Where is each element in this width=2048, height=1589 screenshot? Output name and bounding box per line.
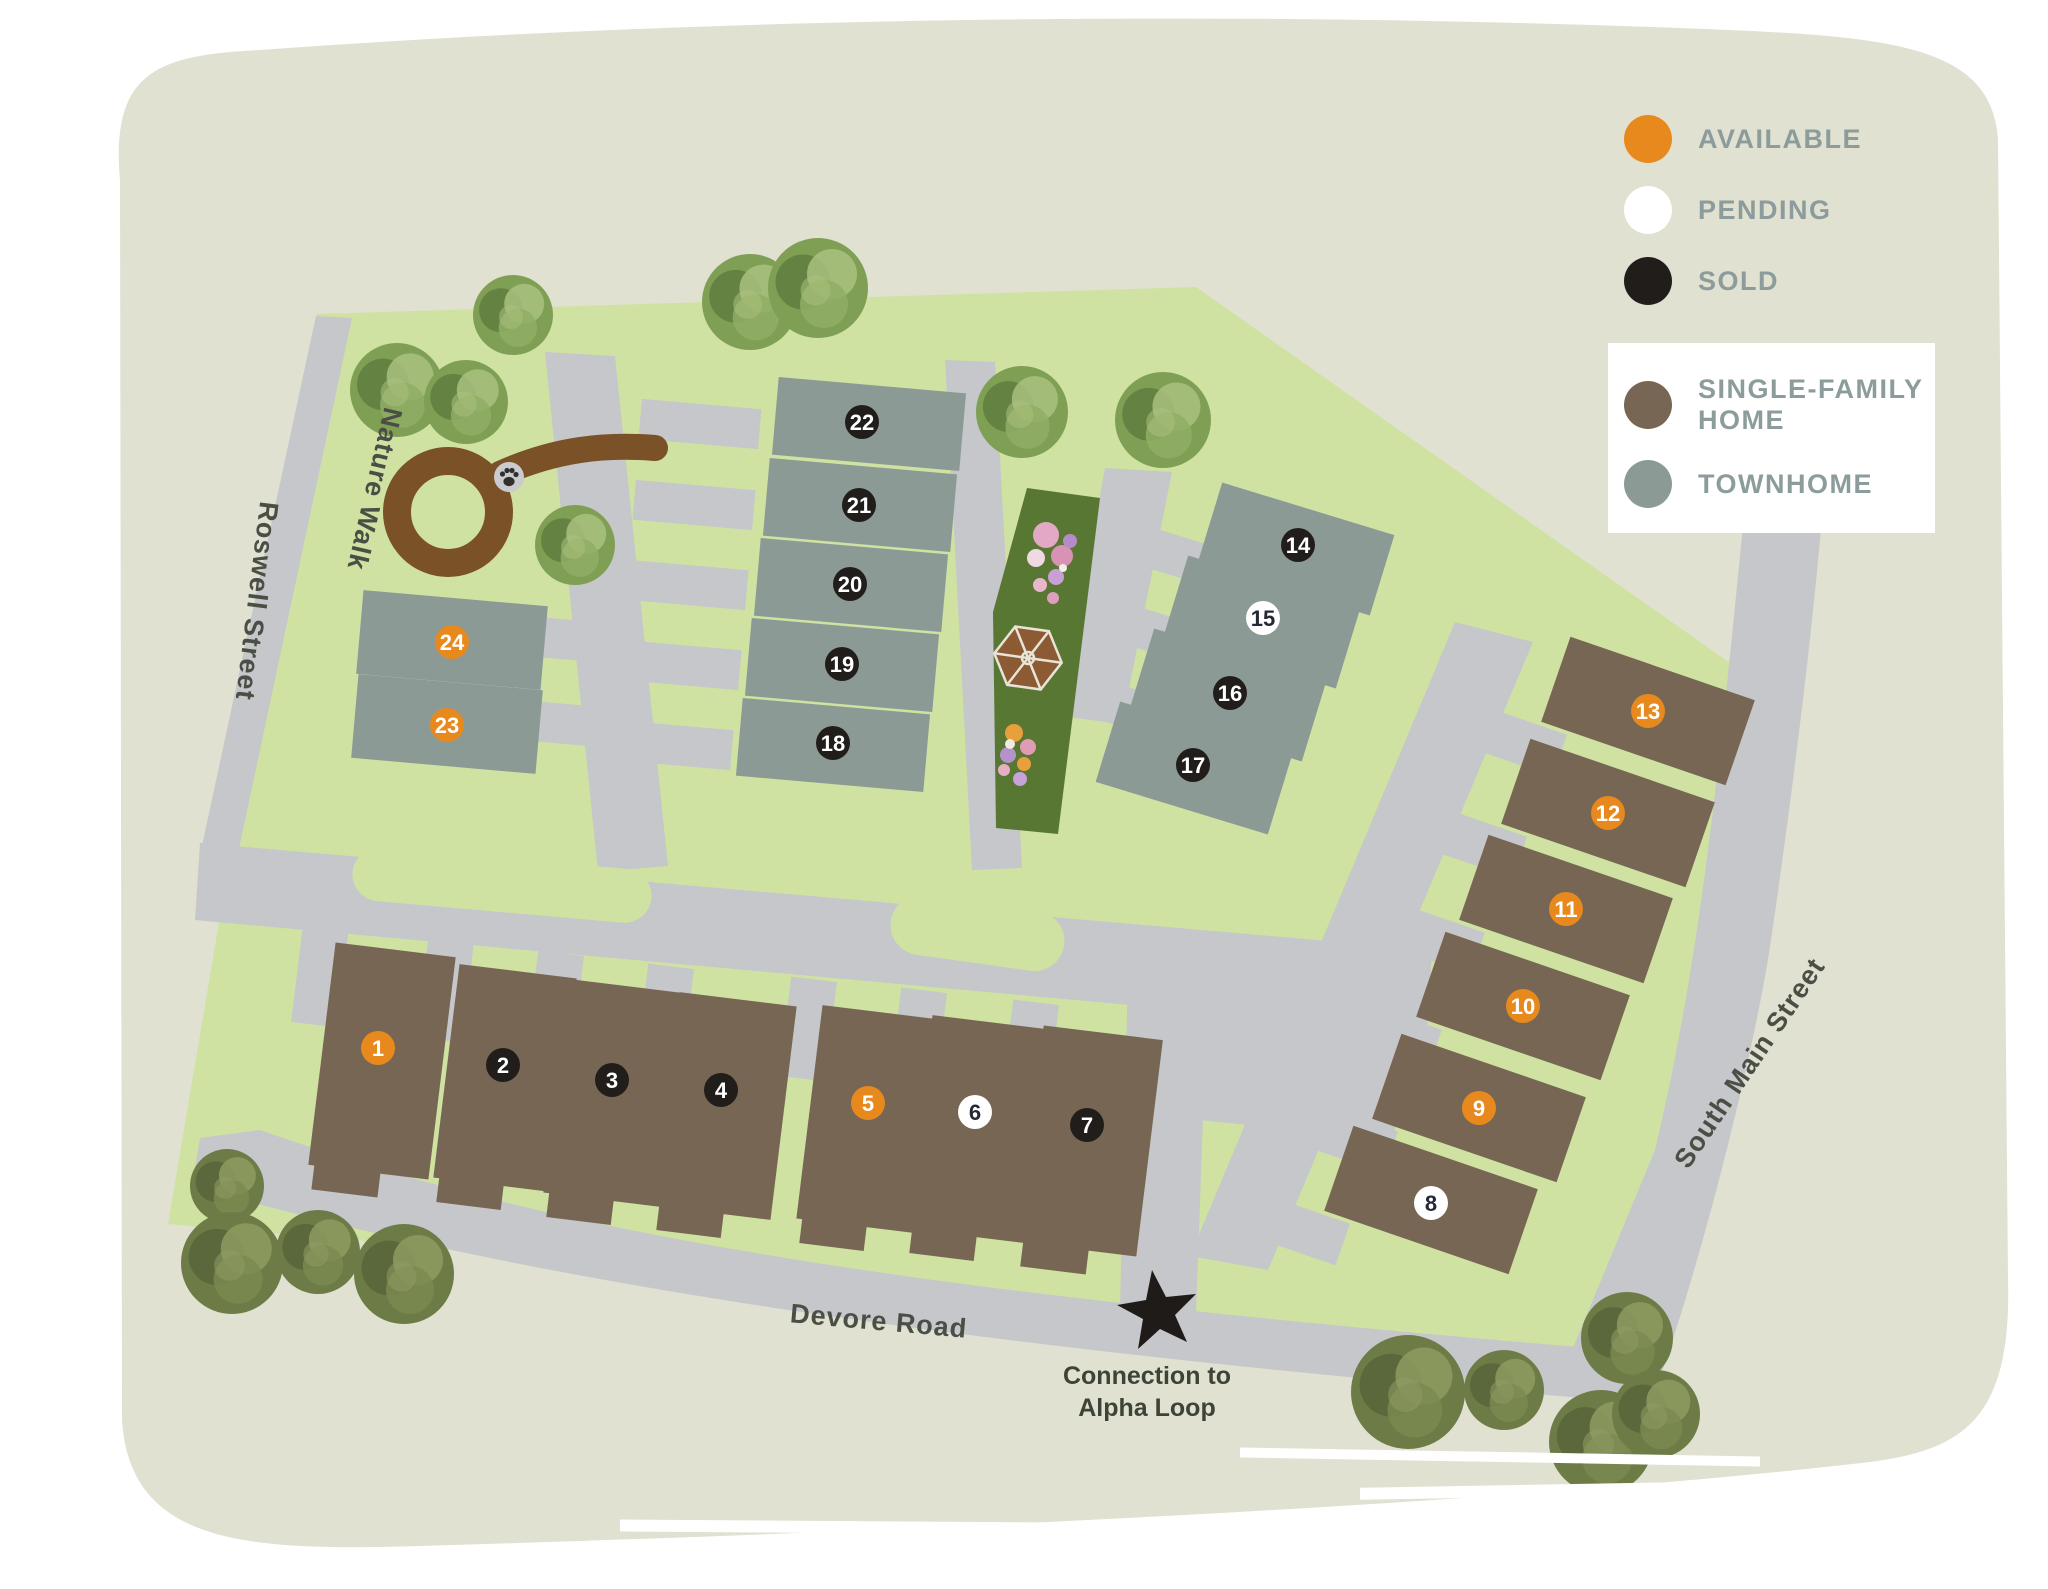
available-dot-icon [1624, 115, 1672, 163]
legend-item-single-family: SINGLE-FAMILY HOME [1624, 374, 1924, 436]
lot-22[interactable]: 22 [772, 377, 966, 471]
tree-icon [354, 1224, 454, 1324]
lot-13-number: 13 [1636, 699, 1660, 724]
lot-7-number: 7 [1081, 1113, 1093, 1138]
legend-item-available: AVAILABLE [1624, 115, 1862, 163]
tree-icon [181, 1212, 283, 1314]
lot-23-number: 23 [435, 713, 459, 738]
lot-21-number: 21 [847, 493, 871, 518]
lot-24-number: 24 [440, 630, 465, 655]
lot-22-number: 22 [850, 410, 874, 435]
paw-icon [494, 462, 524, 492]
lot-4-number: 4 [715, 1078, 728, 1103]
legend-item-sold: SOLD [1624, 257, 1779, 305]
lot-2-number: 2 [497, 1053, 509, 1078]
lot-20[interactable]: 20 [754, 538, 948, 632]
sold-dot-icon [1624, 257, 1672, 305]
lot-19-number: 19 [830, 652, 854, 677]
legend-townhome-label: TOWNHOME [1698, 469, 1873, 500]
lot-11-number: 11 [1554, 897, 1577, 922]
site-plan: 123456789101112131415161718192021222324 … [0, 0, 2048, 1589]
legend-item-pending: PENDING [1624, 186, 1832, 234]
tree-icon [1464, 1350, 1544, 1430]
lot-14-number: 14 [1286, 533, 1311, 558]
lot-18[interactable]: 18 [736, 698, 930, 792]
lot-15-number: 15 [1251, 606, 1275, 631]
tree-icon [1612, 1370, 1700, 1458]
lot-5-number: 5 [862, 1091, 874, 1116]
legend-type-box: SINGLE-FAMILY HOME TOWNHOME [1608, 343, 1935, 533]
tree-icon [768, 238, 868, 338]
tree-icon [976, 366, 1068, 458]
tree-icon [535, 505, 615, 585]
lot-18-number: 18 [821, 731, 845, 756]
lot-12-number: 12 [1596, 801, 1620, 826]
legend-sold-label: SOLD [1698, 266, 1779, 297]
legend-item-townhome: TOWNHOME [1624, 460, 1873, 508]
tree-icon [1351, 1335, 1465, 1449]
lot-9-number: 9 [1473, 1096, 1485, 1121]
legend-available-label: AVAILABLE [1698, 124, 1862, 155]
lot-19[interactable]: 19 [745, 618, 939, 712]
tree-icon [1115, 372, 1211, 468]
lot-1-number: 1 [372, 1036, 384, 1061]
lot-6-number: 6 [969, 1100, 981, 1125]
tree-icon [190, 1149, 264, 1223]
tree-icon [424, 360, 508, 444]
tree-icon [473, 275, 553, 355]
tree-icon [276, 1210, 360, 1294]
pending-dot-icon [1624, 186, 1672, 234]
lot-20-number: 20 [838, 572, 862, 597]
lot-10-number: 10 [1511, 994, 1535, 1019]
lot-17-number: 17 [1181, 753, 1205, 778]
townhome-dot-icon [1624, 460, 1672, 508]
lot-24[interactable]: 24 [356, 590, 548, 690]
lot-16-number: 16 [1218, 681, 1242, 706]
lot-8-number: 8 [1425, 1191, 1437, 1216]
lot-3-number: 3 [606, 1068, 618, 1093]
single-family-dot-icon [1624, 381, 1672, 429]
legend-pending-label: PENDING [1698, 195, 1832, 226]
connection-label-line2: Alpha Loop [1078, 1394, 1215, 1422]
legend-single-family-label: SINGLE-FAMILY HOME [1698, 374, 1924, 436]
lot-21[interactable]: 21 [763, 458, 957, 552]
lot-23[interactable]: 23 [351, 674, 543, 774]
connection-label-line1: Connection to [1063, 1362, 1231, 1390]
